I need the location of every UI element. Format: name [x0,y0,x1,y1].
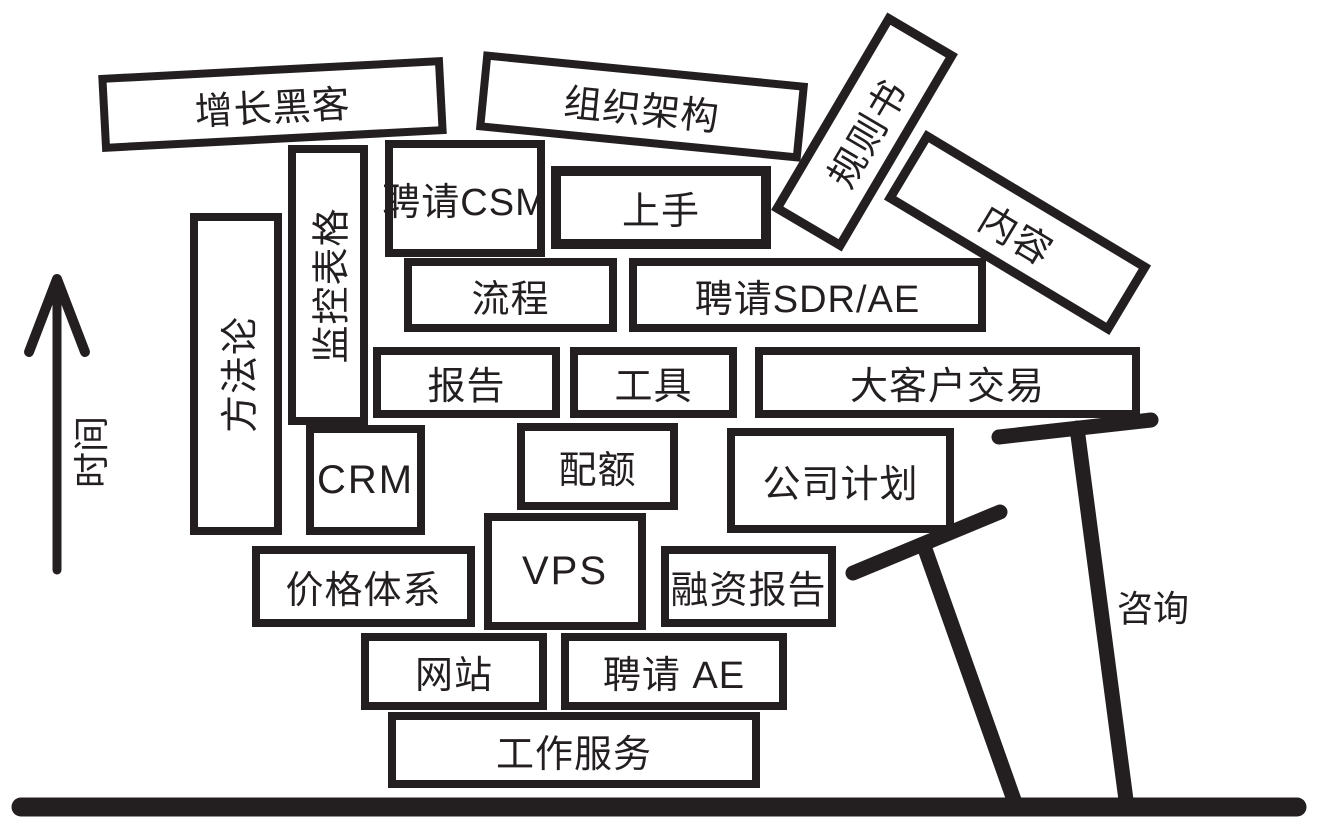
block-methodology: 方法论 [190,213,282,535]
block-label: 网站 [415,644,493,699]
block-reports: 报告 [373,347,560,418]
crutch-prop-icon-inner [853,512,1014,800]
block-label: 流程 [471,268,549,323]
block-label: 聘请CSM [382,171,547,226]
block-monitoring-sheet: 监控表格 [288,145,368,425]
block-label: 监控表格 [301,207,356,363]
block-website: 网站 [361,633,547,710]
block-label: CRM [317,458,414,503]
block-quota: 配额 [517,423,678,510]
block-onboarding: 上手 [551,166,771,249]
block-label: 融资报告 [670,559,826,614]
block-label: 聘请 AE [603,644,745,699]
block-tools: 工具 [570,347,737,418]
block-label: 公司计划 [762,453,918,508]
block-label: 配额 [558,439,636,494]
block-work-services: 工作服务 [388,712,760,788]
block-funding-report: 融资报告 [661,546,836,627]
block-label: 上手 [622,180,700,235]
consulting-label: 咨询 [1117,580,1189,632]
block-crm: CRM [306,425,425,535]
block-hire-ae: 聘请 AE [561,633,787,710]
block-label: 组织架构 [562,72,723,142]
block-label: 工具 [614,355,692,410]
block-enterprise-deals: 大客户交易 [755,347,1140,418]
block-label: 价格体系 [285,559,441,614]
block-company-plan: 公司计划 [727,428,954,533]
block-hire-sdr-ae: 聘请SDR/AE [629,258,986,332]
block-process: 流程 [404,258,617,332]
block-label: VPS [522,549,608,594]
block-label: 大客户交易 [850,355,1045,410]
block-label: 增长黑客 [193,73,352,136]
block-label: 方法论 [209,315,264,432]
block-hire-csm: 聘请CSM [385,140,545,257]
block-vps: VPS [484,513,646,630]
block-label: 工作服务 [496,723,652,778]
time-axis-label: 时间 [63,416,115,488]
block-label: 报告 [427,355,505,410]
block-pricing: 价格体系 [252,546,475,627]
jenga-diagram: 方法论 监控表格 增长黑客 组织架构 规则书 内容 聘请CSM 上手 流程 聘请… [0,0,1323,830]
block-label: 聘请SDR/AE [695,268,920,323]
